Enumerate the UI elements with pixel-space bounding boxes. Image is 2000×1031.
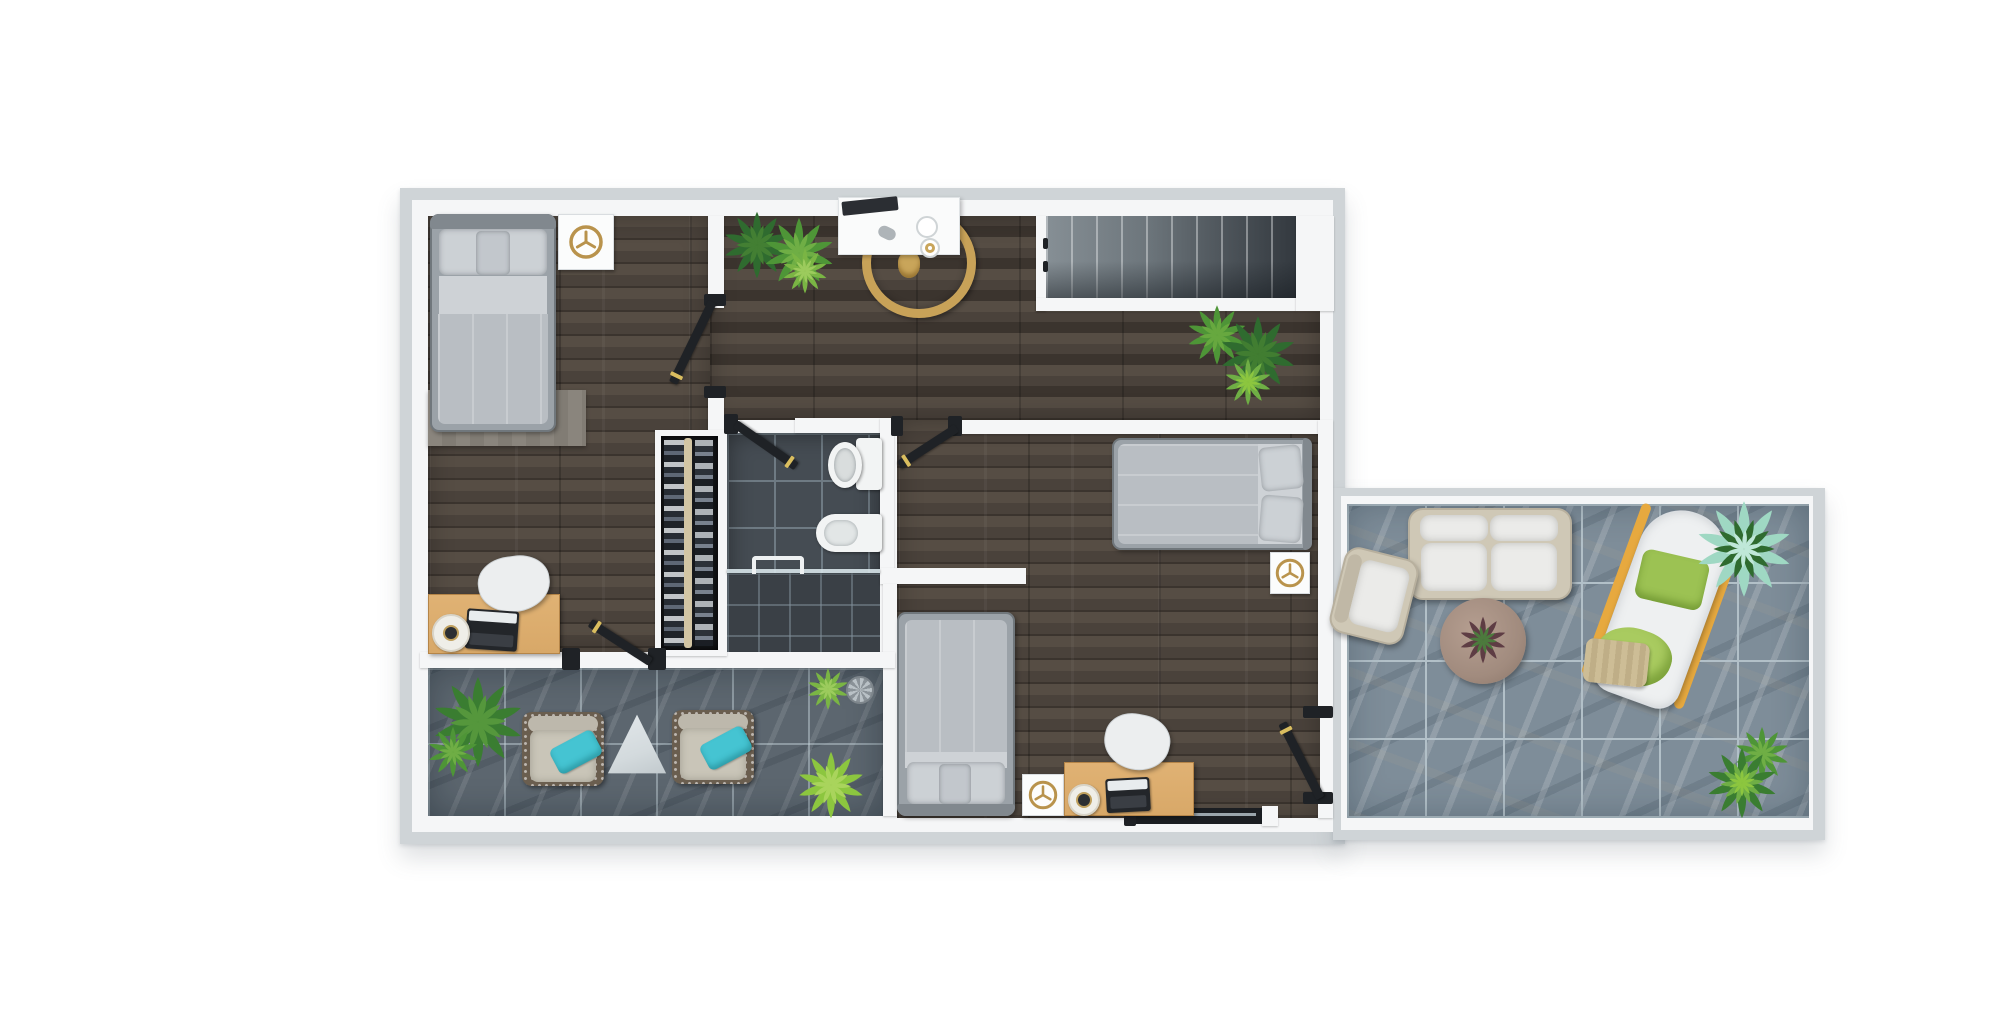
console-plate-gold (920, 238, 940, 258)
floor-drain (846, 676, 874, 704)
wall-terrace-right-upper (1318, 420, 1333, 714)
plant-on-table (1456, 614, 1510, 666)
knit-blanket (1582, 637, 1650, 687)
plant (792, 748, 870, 822)
washbasin-inner (824, 520, 858, 546)
wall-right-of-stairs (1296, 216, 1334, 311)
stair-rail-wall (1036, 298, 1296, 311)
doorframe-cap (891, 416, 903, 436)
sofa-seat-cushion (1491, 543, 1557, 591)
wall-bedroom1-lower (708, 394, 724, 434)
coffee-tray (1068, 784, 1100, 816)
wall-bedroom3-top (880, 568, 1026, 584)
pillow (1258, 494, 1304, 543)
laptop (465, 608, 520, 652)
single-bed-bottom (897, 612, 1015, 816)
blanket (905, 620, 1007, 756)
headboard (897, 804, 1015, 816)
pillow-fold (476, 231, 510, 275)
stair-hinge-top (1043, 238, 1048, 249)
floor-shower (727, 573, 880, 655)
blanket (1118, 444, 1258, 544)
headboard (430, 214, 556, 229)
wicker-armchair (672, 710, 754, 784)
floor-plan (0, 0, 2000, 1031)
closet-rod (684, 438, 692, 648)
wall-bottom-left-a (420, 652, 570, 668)
closet-clothes-right (695, 440, 713, 646)
mirror-ornament (898, 252, 920, 278)
floor-plan-canvas (0, 0, 2000, 1031)
nightstand (1022, 774, 1064, 816)
plant (424, 724, 482, 780)
doorframe-cap (562, 648, 580, 670)
plant (1220, 356, 1276, 408)
towel-bar (752, 556, 804, 574)
clock-icon (1273, 556, 1307, 590)
closet-clothes-left (664, 440, 684, 646)
doorframe-cap (1303, 706, 1333, 718)
pillow-fold (939, 764, 971, 804)
single-bed-top-left (430, 214, 556, 432)
plant (1694, 744, 1790, 822)
nightstand (1270, 552, 1310, 594)
laptop (1105, 777, 1151, 813)
clock-icon (566, 222, 606, 262)
pillow (1258, 444, 1304, 492)
clock-icon (1026, 778, 1060, 812)
wicker-armchair (522, 712, 604, 786)
coffee-tray (432, 614, 470, 652)
plant (804, 666, 852, 712)
outdoor-sofa (1408, 508, 1572, 600)
nightstand (558, 214, 614, 270)
staircase (1046, 216, 1296, 298)
toilet-seat (834, 448, 856, 482)
wall-bedroom3-left (883, 584, 897, 816)
headboard (1303, 438, 1312, 550)
blanket (438, 314, 548, 424)
sliding-door-sill (1262, 806, 1278, 826)
sofa-seat-cushion (1421, 543, 1487, 591)
doorframe-cap (704, 386, 726, 398)
plant (778, 246, 832, 296)
sofa-back-cushion (1490, 515, 1558, 541)
sofa-back-cushion (1420, 515, 1488, 541)
console-plate (916, 216, 938, 238)
stair-hinge-bottom (1043, 261, 1048, 272)
double-bed (1112, 438, 1312, 550)
wall-hall-bedrooms (958, 420, 1320, 434)
plant (1688, 496, 1800, 602)
wall-bathroom-right (880, 418, 894, 570)
